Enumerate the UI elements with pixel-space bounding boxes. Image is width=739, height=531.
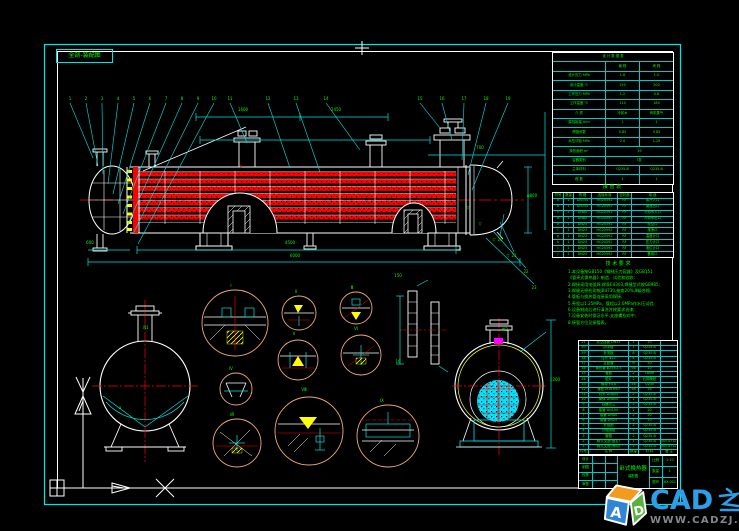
detail-VI: [341, 335, 381, 375]
right-end-view: [452, 318, 556, 455]
drawing-title: 卧式换热器: [619, 466, 647, 473]
detail-III: [340, 292, 372, 324]
bom-table: 21放空接管 DN2512020防冲板1Q235-B19折流板8Q235-B18…: [578, 340, 678, 455]
detail-IV: [220, 373, 252, 405]
detail-V: [278, 340, 318, 380]
detail-II: [282, 296, 316, 330]
detail-I: [202, 290, 268, 356]
cadzj-watermark: A D CAD WW: [602, 483, 739, 530]
detail-circles: [202, 290, 419, 467]
detail-IX: [357, 405, 419, 467]
shell-vent-nozzle: [146, 151, 158, 167]
nozzle-table-title: 接 管 表: [603, 185, 621, 190]
watermark-url: WWW.CADZJ.COM: [650, 515, 739, 527]
cad-drawing-canvas: 全剖-装配图 设 计 数 据 表管 程壳 程设计压力 MPa1.61.0设计温度…: [0, 0, 739, 531]
end-view-chords: [103, 396, 188, 427]
nozzle-table: 符号数量规 格连接标准密封面用 途a1DN150HG20592RF蒸汽入口b1D…: [552, 192, 674, 258]
centering-mark-top: [355, 41, 369, 55]
left-end-view: [92, 300, 198, 462]
detail-projection-line: [143, 127, 246, 171]
design-data-table: 设 计 数 据 表管 程壳 程设计压力 MPa1.61.0设计温度 ℃15020…: [552, 52, 674, 185]
watermark-brand-latin: CAD: [650, 487, 713, 514]
baffle-bar-detail: [396, 280, 448, 372]
right-end-dim: [520, 320, 556, 448]
saddle-support-left: [196, 233, 232, 250]
detail-VIII: [275, 397, 343, 465]
magenta-marker: [494, 338, 503, 344]
technical-notes: 1.本设备按GB150《钢制压力容器》及GB151 《管壳式换热器》制造、试验和…: [568, 269, 676, 326]
tube-field-grid: [475, 378, 521, 424]
watermark-brand-cjk-glyphs: [715, 486, 739, 514]
detail-VII: [213, 419, 261, 467]
drawing-subtitle: 装配图: [628, 473, 638, 478]
cadzj-logo-icon: A D: [602, 483, 648, 530]
corner-square-symbol: [50, 480, 64, 496]
top-nozzle-3: [434, 119, 470, 167]
drain-nozzle: [304, 233, 316, 249]
channel-bottom-nozzle: [93, 234, 107, 251]
top-nozzle-1: [234, 131, 260, 168]
flange-bolts: [127, 170, 132, 231]
notes-title: 技 术 要 求: [606, 262, 631, 267]
view-title-label: 全剖-装配图: [56, 49, 113, 63]
weld-flag-symbol: [75, 377, 91, 488]
saddle-support-right: [424, 233, 460, 250]
main-assembly-view: [70, 103, 545, 284]
